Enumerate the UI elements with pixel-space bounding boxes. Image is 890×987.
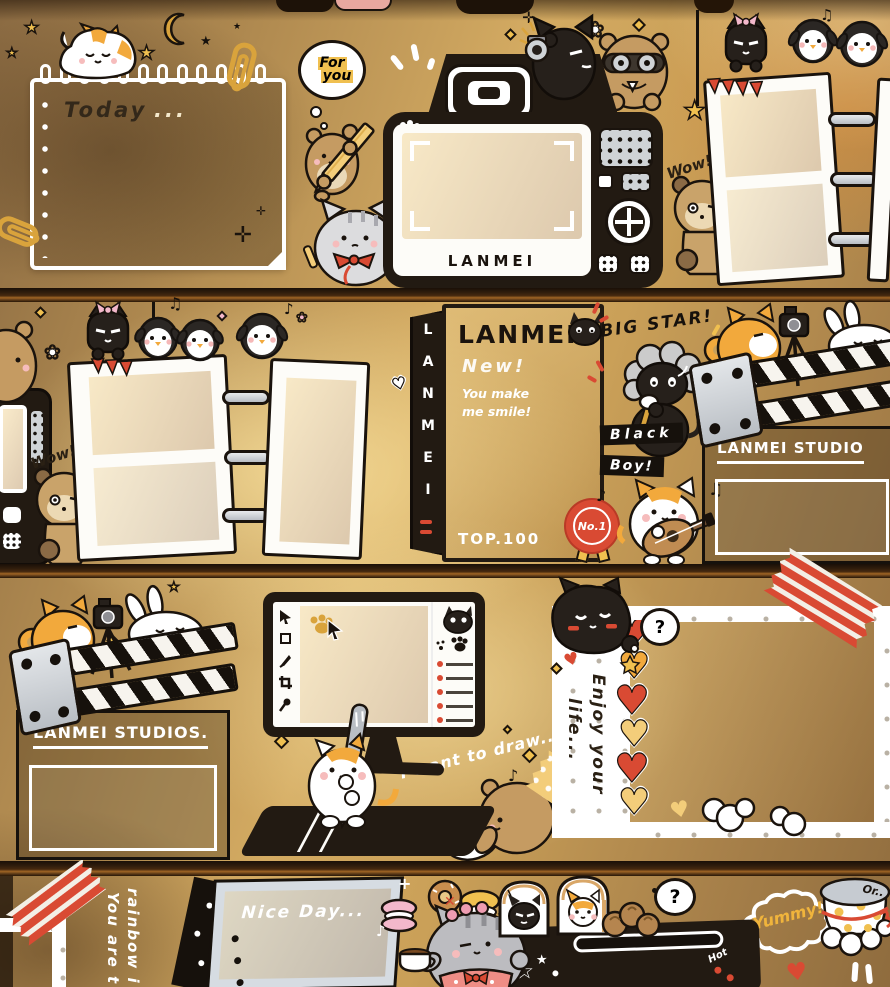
music-note-icon: ♪ xyxy=(508,766,518,785)
bread-cat-black xyxy=(494,876,554,940)
for-you-bubble: For you xyxy=(298,40,366,100)
heart-icon: ♥ xyxy=(618,782,650,823)
new-label: New! xyxy=(462,356,526,377)
black-cat-head-icon xyxy=(439,606,473,634)
frame-corner-vertical xyxy=(52,926,66,987)
black-star-icon: ★ xyxy=(233,22,241,32)
flower-icon: ❀ xyxy=(296,310,308,326)
paw-dots-icon xyxy=(435,640,447,650)
list-row xyxy=(437,674,473,682)
frame-right-band xyxy=(874,622,890,822)
question-mark: ? xyxy=(669,886,680,908)
eyedropper-tool-icon xyxy=(279,698,291,712)
vertical-caption-line1: You are t xyxy=(104,892,122,985)
photo-binder xyxy=(66,346,368,564)
top-dark-object xyxy=(276,0,334,12)
paw-icon xyxy=(449,636,469,653)
marquee-tool-icon xyxy=(280,633,291,644)
clapper-label: LANMEI STUDIO xyxy=(717,439,864,464)
photo-binder xyxy=(700,60,890,288)
question-bubble: ? xyxy=(654,878,696,916)
penguin xyxy=(136,314,180,360)
today-notepad: Today ... ✛ ✛ xyxy=(30,78,286,270)
photo-window xyxy=(720,89,821,177)
black-cat-pink-bow xyxy=(716,16,778,74)
black-cat-pink-bow xyxy=(78,304,140,362)
heart-icon: ♥ xyxy=(390,373,409,395)
black-star-icon: ★ xyxy=(200,34,212,49)
washi-tape-sheet: ★ ★ ★ ★ ★ Today ... xyxy=(0,0,890,987)
spine-label: LANMEI xyxy=(420,322,436,514)
heart-icon: ♥ xyxy=(784,957,809,987)
board-frame: Nice Day... xyxy=(209,879,401,987)
photo-window xyxy=(279,378,356,545)
top-dark-object xyxy=(694,0,734,13)
clapper-hinge xyxy=(8,638,82,737)
tagline-line1: You make xyxy=(462,386,529,401)
music-note-icon: ♫ xyxy=(168,294,182,313)
star-icon: ★ xyxy=(24,18,39,38)
tape-strip-1: ★ ★ ★ ★ ★ Today ... xyxy=(0,24,890,288)
button-small xyxy=(597,174,613,189)
stylus-cat xyxy=(292,704,404,836)
penguin xyxy=(838,18,886,68)
enjoy-line1: Enjoy your xyxy=(588,674,608,795)
photo-window xyxy=(727,184,828,272)
camera-brand-label: LANMEI xyxy=(393,252,591,270)
binder-left-page xyxy=(67,354,237,562)
sparkle-icon: ✛ xyxy=(234,223,252,248)
top-pink-object xyxy=(334,0,392,11)
gold-sparkle-icon xyxy=(504,28,517,41)
paw-button xyxy=(629,254,651,274)
pen-tool-icon xyxy=(279,653,292,667)
binder-right-page xyxy=(262,358,371,560)
tagline-line2: me smile! xyxy=(462,404,531,419)
clapperboard: LANMEI STUDIO xyxy=(702,426,890,564)
button-grid xyxy=(621,172,651,192)
bear-peeking xyxy=(0,320,40,406)
tape-strip-3: ★ LANMEI STUDIOS. xyxy=(0,578,890,861)
hanging-string xyxy=(696,10,699,106)
rosette-label: No.1 xyxy=(578,520,607,533)
clapper-window xyxy=(29,765,217,851)
bubble-dot xyxy=(630,644,639,653)
black-cat-photographer xyxy=(520,10,598,114)
bread-rolls xyxy=(600,898,662,940)
star-icon: ★ xyxy=(6,46,18,61)
photo-window xyxy=(93,462,219,546)
moon-icon xyxy=(164,12,196,46)
notepad-page: LANMEI New! You make me smile! TOP.100 xyxy=(442,304,604,562)
pudding-bowl: Or.. xyxy=(816,876,890,970)
music-note-icon: ♪ xyxy=(376,922,386,940)
tape-strip-2: ❀ ★ xyxy=(0,302,890,564)
penguin xyxy=(178,316,222,362)
photo-window xyxy=(630,622,874,822)
list-row xyxy=(437,660,473,668)
black-cat-head-icon xyxy=(562,312,602,346)
dpad-button xyxy=(605,198,653,246)
cursor-tool-icon xyxy=(279,610,292,624)
board-frame-outer: Nice Day... xyxy=(206,876,404,987)
hot-label: Hot xyxy=(707,947,730,966)
music-note-icon: ♪ xyxy=(596,486,606,505)
plus-icon: + xyxy=(398,874,411,893)
today-ellipsis: ... xyxy=(154,98,187,122)
gold-sparkle-icon xyxy=(34,306,47,319)
question-mark: ? xyxy=(655,617,665,638)
question-bubble: ? xyxy=(640,608,680,646)
paw-cloud xyxy=(700,794,756,838)
hamster-with-pencil xyxy=(304,116,372,206)
gold-sparkle-icon xyxy=(503,725,513,735)
vertical-caption-line2: rainbow i xyxy=(124,888,142,985)
clapperboard: LANMEI STUDIOS. xyxy=(16,710,230,860)
lanmei-notepad: LANMEI LANMEI New! You make me smile! TO… xyxy=(410,304,604,562)
board-surface: Nice Day... xyxy=(219,889,391,980)
black-label: Black xyxy=(600,423,683,446)
list-row xyxy=(437,688,473,696)
list-row xyxy=(437,716,473,724)
strip-divider xyxy=(0,288,890,302)
tape-strip-4: You are t rainbow i Nice Day... xyxy=(0,876,890,987)
notepad-brand: LANMEI xyxy=(458,320,577,349)
photo-window xyxy=(89,371,215,455)
pennant-banner xyxy=(708,75,765,97)
camera-screen: LANMEI xyxy=(393,124,591,276)
enjoy-polaroid: ♥ ♥ ♥ ♥ ♥ ♥ Enjoy your life... ♥ ♥ ♥ xyxy=(552,606,890,838)
screen-window xyxy=(402,133,582,239)
no1-rosette: No.1 xyxy=(564,500,622,558)
button-grid xyxy=(599,128,653,168)
crop-tool-icon xyxy=(279,676,292,689)
side-panel xyxy=(431,602,475,727)
today-text: Today xyxy=(64,98,147,122)
sparkle-icon: ✛ xyxy=(256,204,266,218)
black-cat-peeking xyxy=(542,578,644,672)
list-row xyxy=(437,702,473,710)
strip-divider xyxy=(0,861,890,876)
penguin xyxy=(238,310,286,360)
board-title: Nice Day... xyxy=(241,901,366,923)
for-you-line2: you xyxy=(321,70,354,83)
nice-day-board: Nice Day... xyxy=(168,878,400,987)
sleeping-cat xyxy=(56,24,142,80)
clapper-window xyxy=(715,479,889,555)
binder-ring xyxy=(828,112,876,127)
clapper-hinge xyxy=(688,351,764,448)
flower-icon: ❀ xyxy=(44,340,61,364)
paw-cloud xyxy=(768,802,812,842)
cursor-arrow-icon xyxy=(326,620,344,640)
spine-dash xyxy=(420,530,432,534)
binder-ring xyxy=(222,390,270,405)
strip-divider xyxy=(0,564,890,578)
spine-dash xyxy=(420,520,432,524)
top100-label: TOP.100 xyxy=(458,530,540,548)
page-corner-fold xyxy=(264,248,286,270)
frame-bottom-band xyxy=(630,822,890,838)
notepad-title: Today ... xyxy=(64,98,187,122)
enjoy-line2: life... xyxy=(564,698,584,762)
paw-button xyxy=(597,254,619,274)
binder-left-page xyxy=(703,72,845,286)
penguin xyxy=(790,16,836,64)
